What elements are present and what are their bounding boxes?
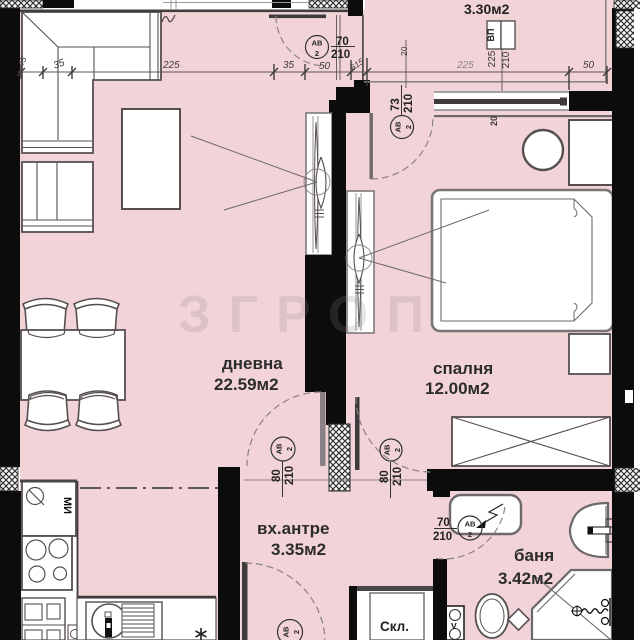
svg-text:70: 70 <box>336 36 349 48</box>
svg-text:АВ: АВ <box>383 444 392 455</box>
svg-text:70: 70 <box>437 517 450 529</box>
svg-text:73: 73 <box>390 98 402 111</box>
svg-text:210: 210 <box>501 51 512 68</box>
svg-text:3.30м2: 3.30м2 <box>464 1 510 17</box>
svg-text:2: 2 <box>468 530 472 539</box>
svg-text:2: 2 <box>404 125 413 129</box>
svg-text:80: 80 <box>271 469 283 482</box>
svg-text:2: 2 <box>393 448 402 452</box>
svg-text:20: 20 <box>489 116 499 126</box>
svg-text:35: 35 <box>283 60 295 71</box>
svg-text:дневна: дневна <box>222 354 283 373</box>
svg-text:АВ: АВ <box>275 443 284 454</box>
svg-text:210: 210 <box>284 466 296 485</box>
svg-text:210: 210 <box>433 531 452 543</box>
svg-text:ЗГРОП: ЗГРОП <box>178 286 442 344</box>
svg-text:2: 2 <box>285 447 294 451</box>
svg-text:50: 50 <box>583 60 595 71</box>
svg-text:спалня: спалня <box>433 359 493 378</box>
svg-text:210: 210 <box>331 49 350 61</box>
svg-text:80: 80 <box>379 470 391 483</box>
svg-text:225: 225 <box>162 60 180 71</box>
svg-text:ВП: ВП <box>486 29 496 42</box>
svg-text:225: 225 <box>456 60 474 71</box>
svg-text:V: V <box>451 621 457 631</box>
svg-text:АВ: АВ <box>465 520 476 529</box>
svg-text:Скл.: Скл. <box>380 619 409 634</box>
svg-text:вх.антре: вх.антре <box>257 519 330 538</box>
svg-text:22.59м2: 22.59м2 <box>214 375 279 394</box>
svg-text:баня: баня <box>514 546 554 565</box>
svg-text:50: 50 <box>319 61 331 72</box>
svg-text:АВ: АВ <box>282 626 291 637</box>
svg-text:АВ: АВ <box>394 121 403 132</box>
svg-text:3.35м2: 3.35м2 <box>271 540 326 559</box>
svg-text:20: 20 <box>399 46 409 56</box>
svg-text:225: 225 <box>487 50 498 67</box>
svg-text:2: 2 <box>292 630 301 634</box>
svg-text:АВ: АВ <box>312 39 323 48</box>
svg-text:210: 210 <box>392 467 404 486</box>
svg-text:12.00м2: 12.00м2 <box>425 379 490 398</box>
svg-text:2: 2 <box>315 49 319 58</box>
svg-text:МИ: МИ <box>61 497 73 514</box>
svg-text:210: 210 <box>403 94 415 113</box>
svg-text:3.42м2: 3.42м2 <box>498 569 553 588</box>
